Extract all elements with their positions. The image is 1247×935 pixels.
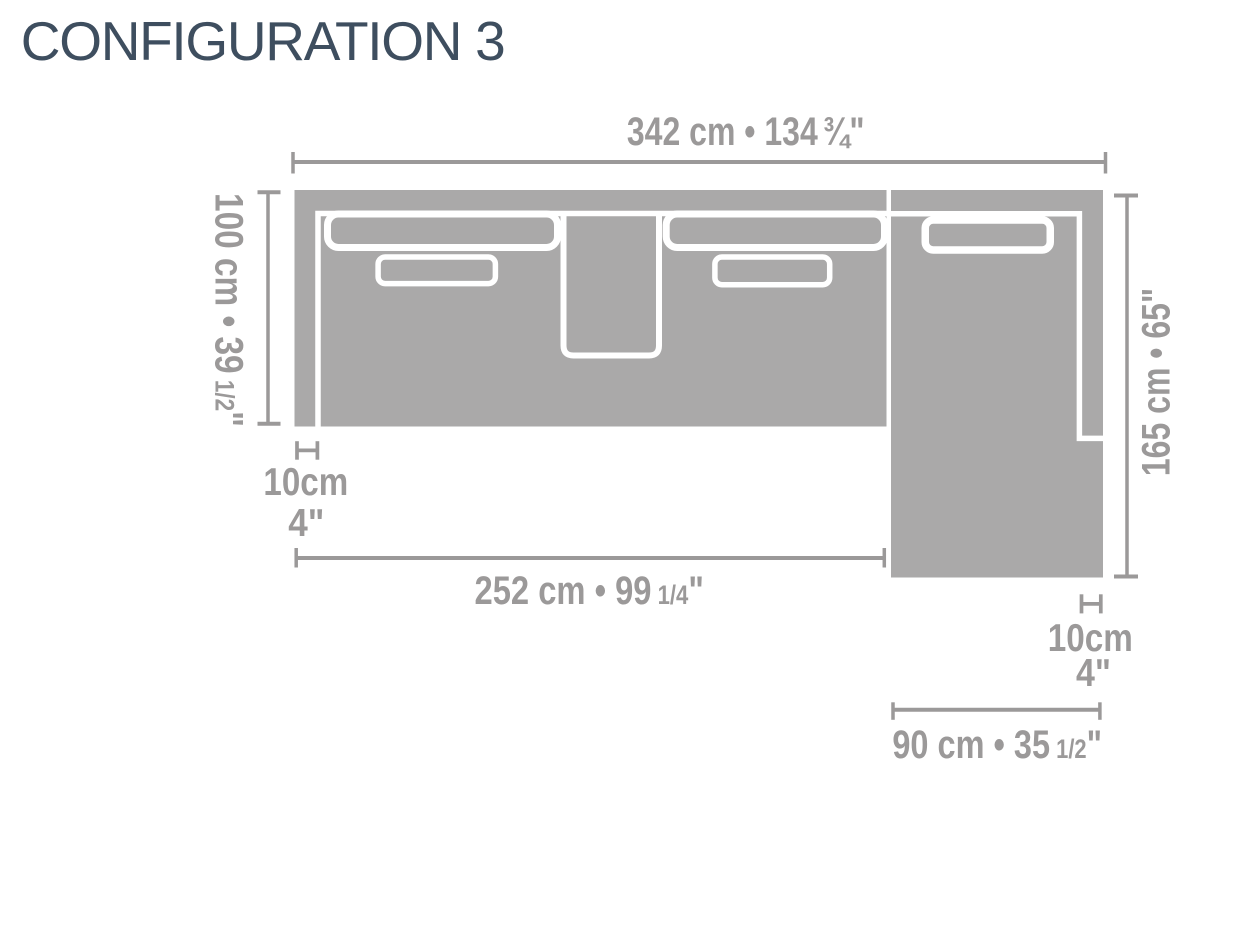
svg-text:4": 4"	[288, 500, 324, 544]
svg-text:4": 4"	[1076, 651, 1111, 695]
svg-text:165 cm • 65": 165 cm • 65"	[1133, 288, 1178, 476]
svg-text:10cm: 10cm	[263, 459, 348, 503]
svg-text:342 cm • 134 ¾": 342 cm • 134 ¾"	[627, 109, 865, 154]
svg-text:CONFIGURATION 3: CONFIGURATION 3	[21, 10, 505, 72]
